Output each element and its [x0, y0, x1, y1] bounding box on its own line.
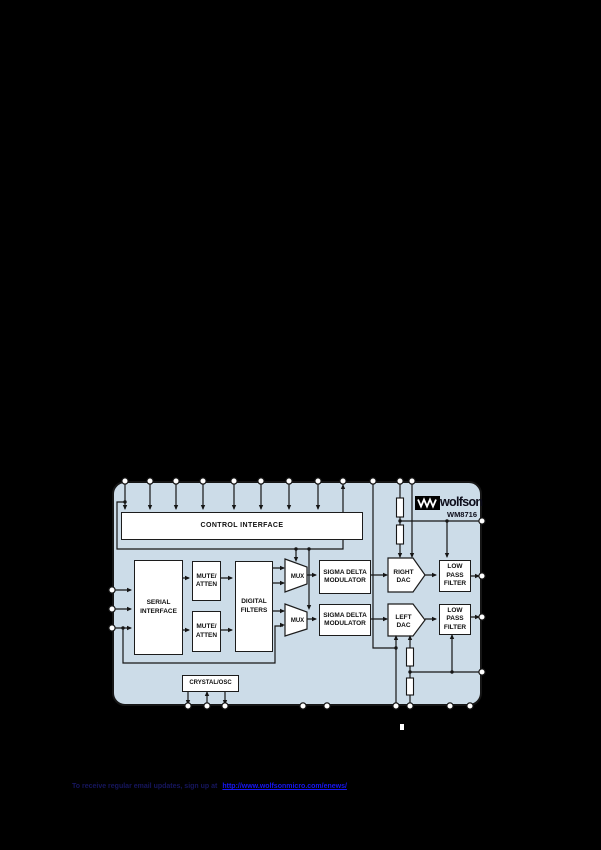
low-pass-filter-block-top: LOW PASS FILTER — [439, 560, 471, 592]
mux-label-top: MUX — [287, 561, 308, 594]
resistor-symbols — [397, 498, 414, 695]
crystal-osc-block: CRYSTAL/OSC — [182, 675, 239, 692]
mute-atten-block-bottom: MUTE/ ATTEN — [192, 611, 221, 652]
wolfson-brand-text: wolfson — [440, 494, 486, 510]
block-diagram: CONTROL INTERFACE SERIAL INTERFACE MUTE/… — [112, 481, 482, 706]
wolfson-logo-mark-icon — [415, 496, 440, 510]
mute-atten-block-top: MUTE/ ATTEN — [192, 561, 221, 601]
footer-signup-link[interactable]: http://www.wolfsonmicro.com/enews/ — [222, 783, 347, 790]
right-dac-label: RIGHT DAC — [390, 560, 417, 594]
datasheet-page: { "diagram": { "caption_mark": " ", "log… — [0, 0, 601, 850]
digital-filters-block: DIGITAL FILTERS — [235, 561, 273, 652]
sigma-delta-modulator-block-bottom: SIGMA DELTA MODULATOR — [319, 604, 371, 636]
serial-interface-block: SERIAL INTERFACE — [134, 560, 183, 655]
left-dac-label: LEFT DAC — [390, 606, 417, 638]
low-pass-filter-block-bottom: LOW PASS FILTER — [439, 604, 471, 635]
footer-signup-text: To receive regular email updates, sign u… — [72, 783, 217, 790]
footer-signup-line: To receive regular email updates, sign u… — [72, 783, 347, 790]
control-interface-block: CONTROL INTERFACE — [121, 512, 363, 540]
caption-fragment — [400, 724, 404, 730]
sigma-delta-modulator-block-top: SIGMA DELTA MODULATOR — [319, 560, 371, 594]
part-number-label: WM8716 — [440, 510, 484, 519]
mux-label-bottom: MUX — [287, 606, 308, 638]
